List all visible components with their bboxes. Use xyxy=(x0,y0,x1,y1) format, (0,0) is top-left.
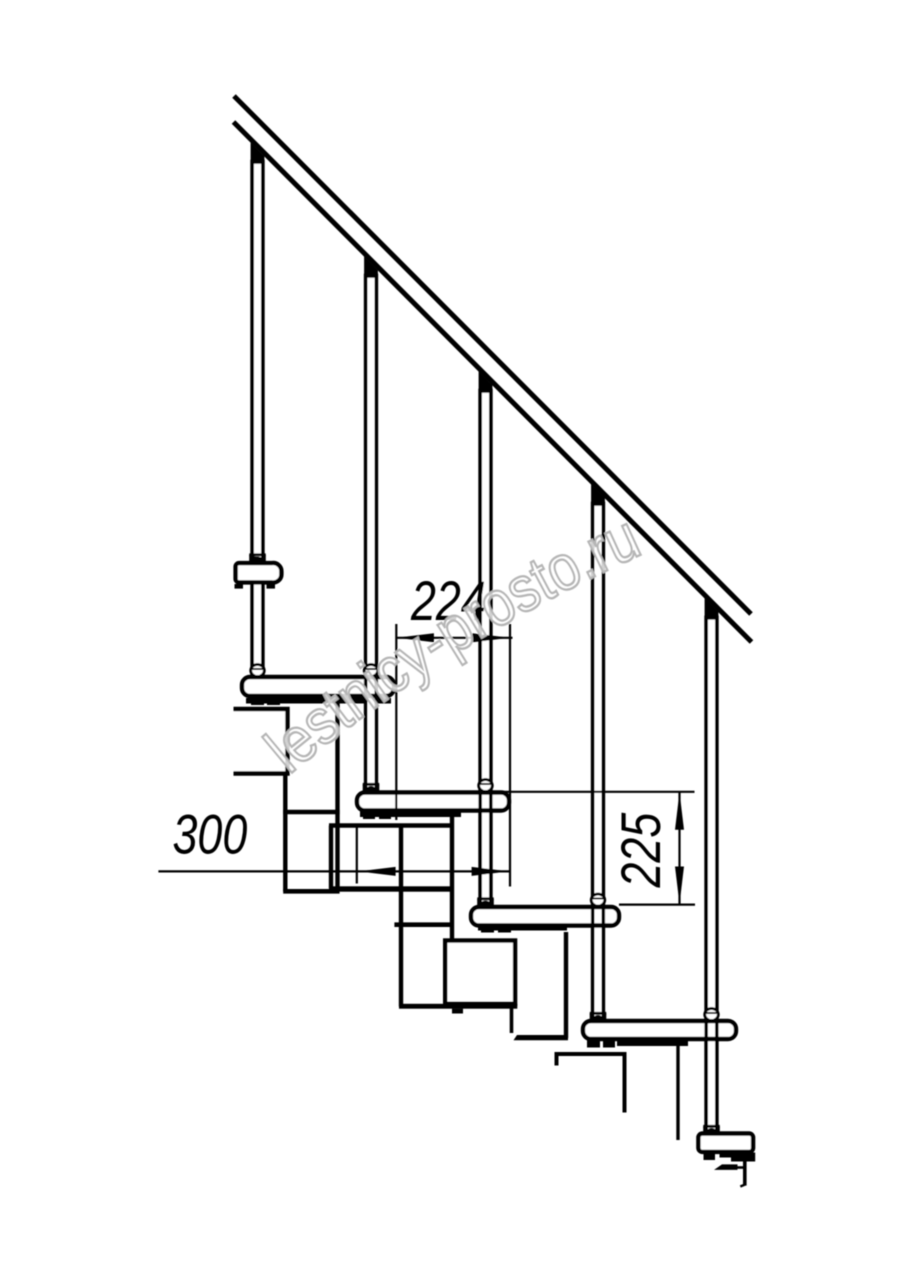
svg-text:300: 300 xyxy=(173,803,248,866)
svg-text:225: 225 xyxy=(609,812,672,888)
